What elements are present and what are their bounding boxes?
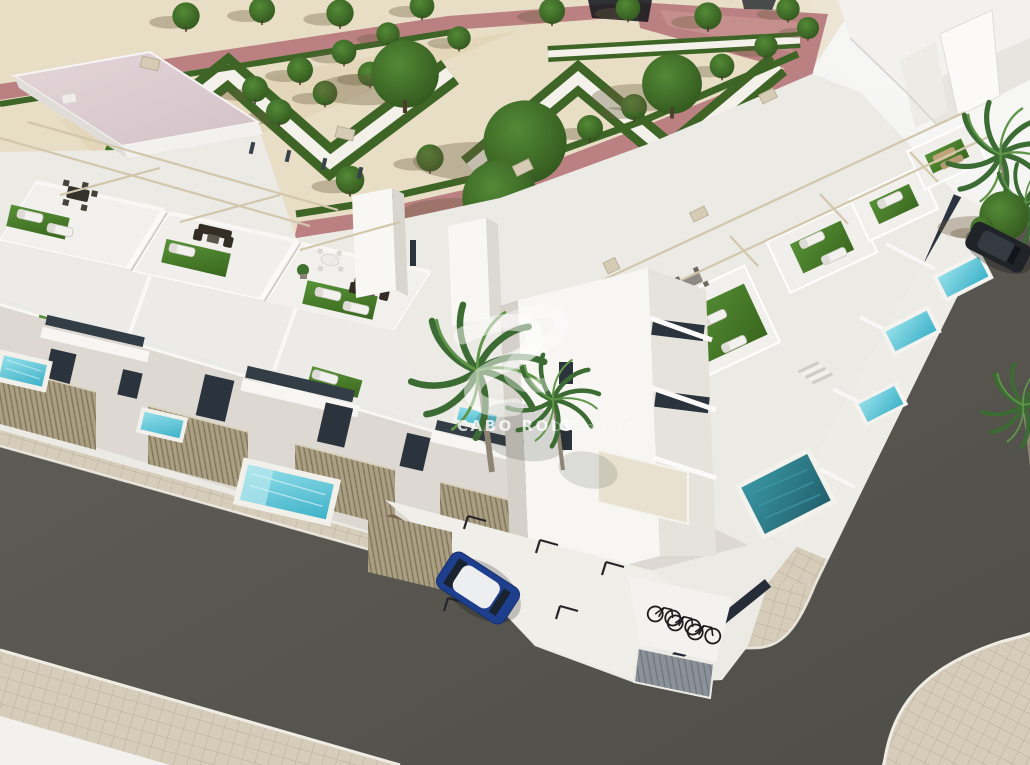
watermark-subtitle: Desde 1970 <box>552 420 634 434</box>
architectural-render: CABO ROIG Desde 1970 <box>0 0 1030 765</box>
render-canvas: CABO ROIG Desde 1970 <box>0 0 1030 765</box>
